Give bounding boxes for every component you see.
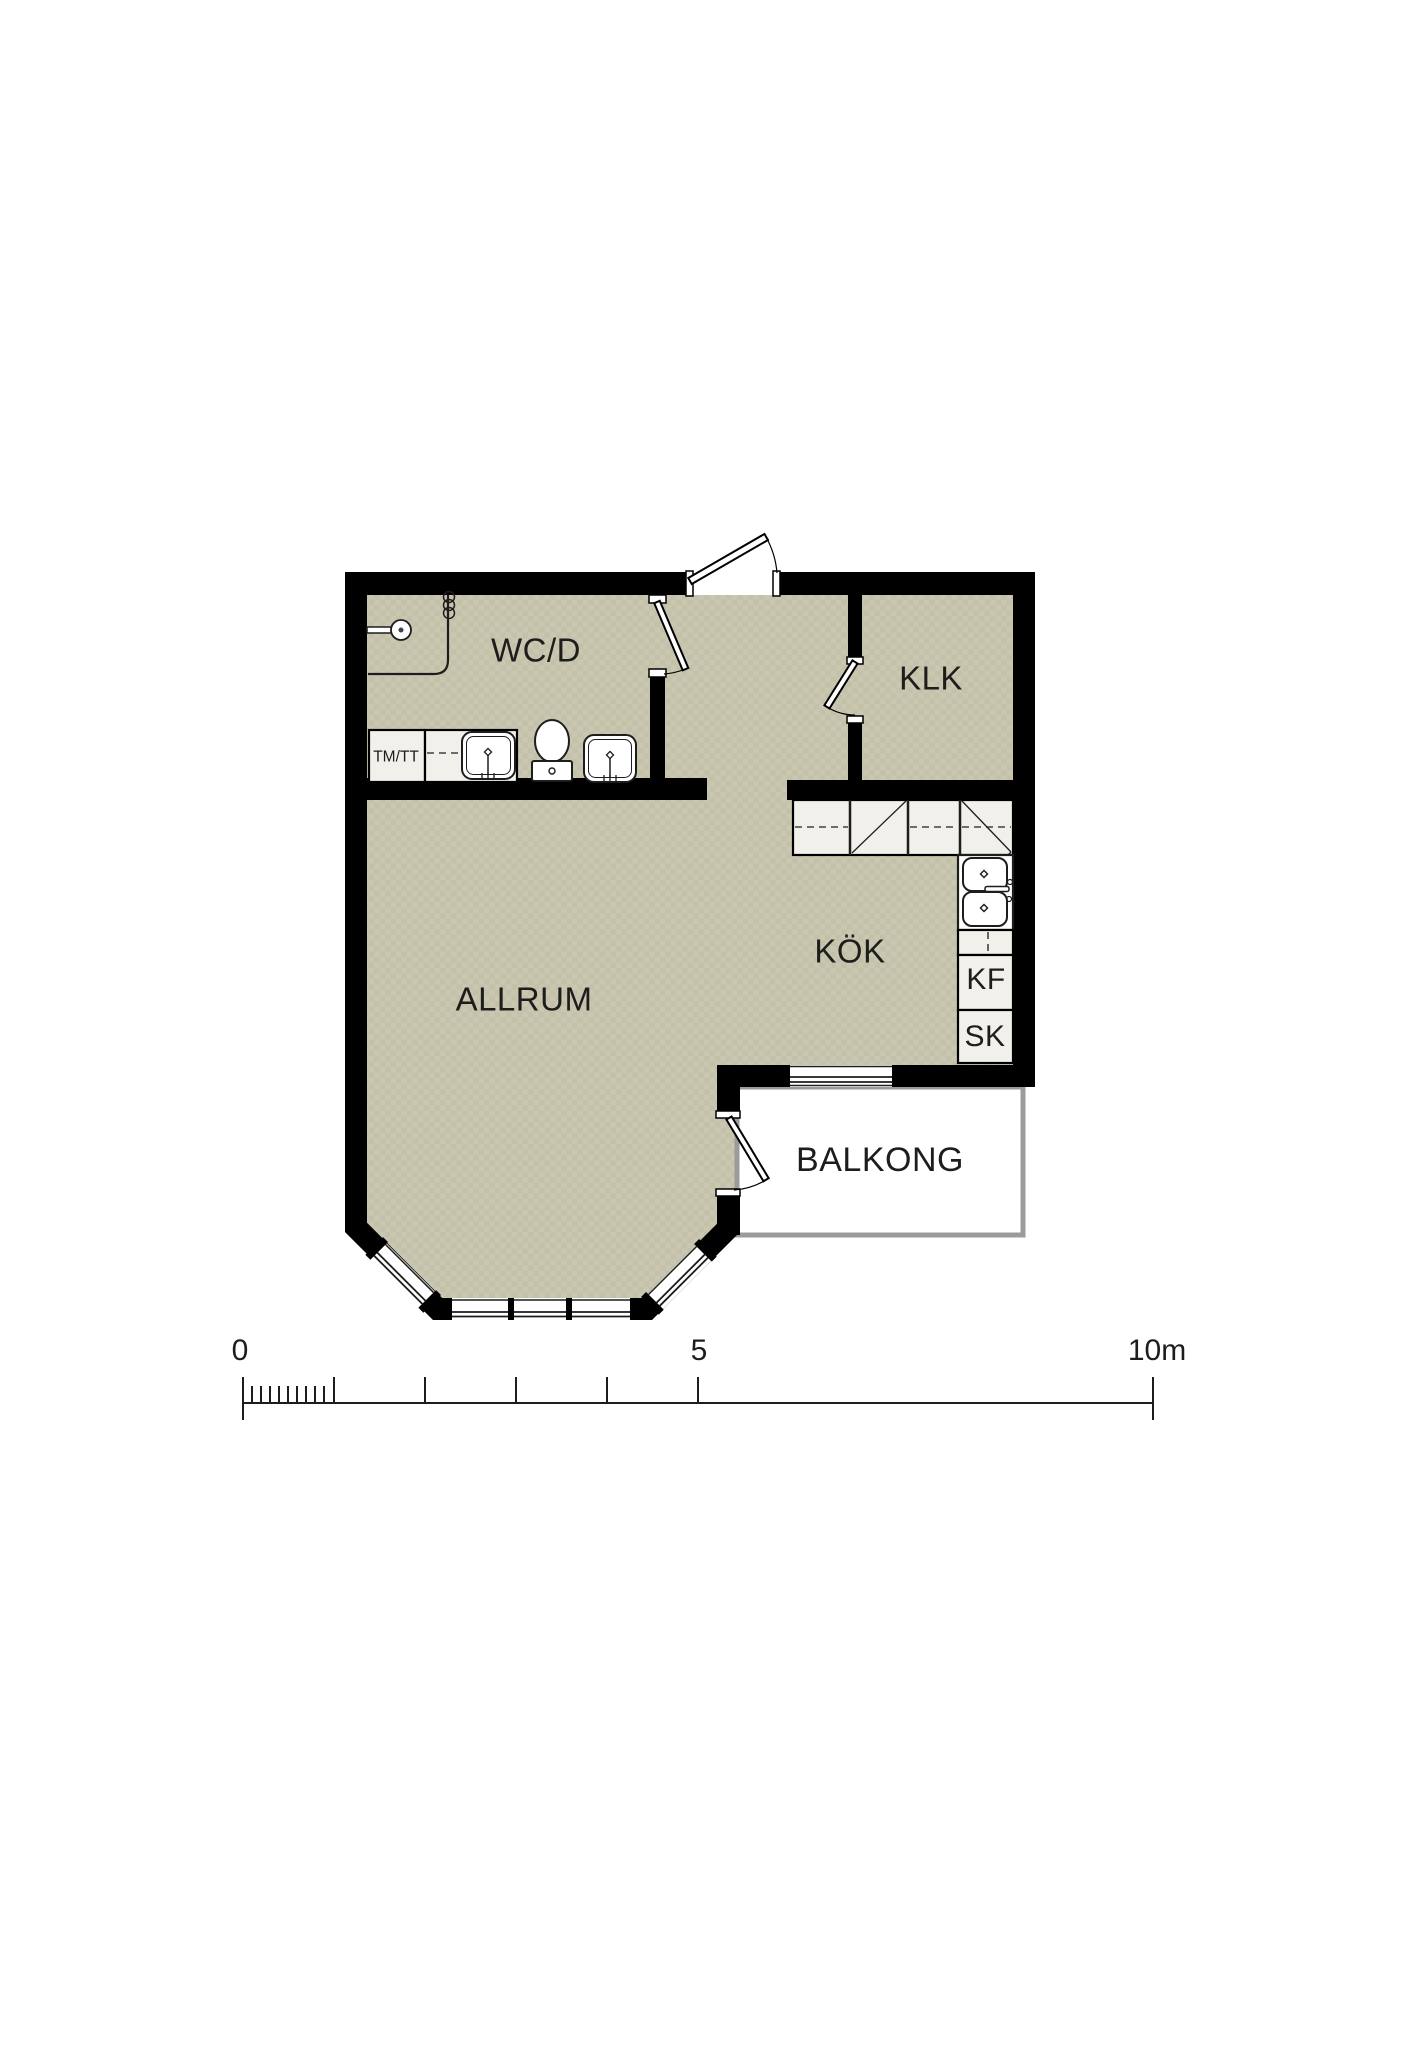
kitchen-balcony-window (790, 1065, 892, 1087)
room-label-wcd: WC/D (491, 634, 581, 667)
label-fridge-freezer: KF (966, 965, 1005, 995)
scale-label-0: 0 (232, 1336, 249, 1366)
room-label-klk: KLK (899, 662, 963, 695)
room-label-allrum: ALLRUM (456, 983, 593, 1016)
scale-label-10m: 10m (1128, 1336, 1186, 1366)
bathroom-sink-counter (425, 730, 517, 782)
scale-bar (243, 1377, 1153, 1420)
label-cleaning-closet: SK (964, 1022, 1005, 1052)
floor-plan-page: WC/D KLK KÖK ALLRUM BALKONG TM/TT KF SK … (0, 0, 1402, 2048)
room-label-kok: KÖK (814, 935, 885, 968)
label-washer-dryer: TM/TT (373, 749, 419, 765)
room-label-balkong: BALKONG (796, 1143, 964, 1177)
bay-window-bottom (452, 1298, 630, 1320)
toilet-icon (532, 720, 572, 781)
floor-plan-drawing (0, 0, 1402, 2048)
scale-label-5: 5 (691, 1336, 708, 1366)
kitchen-sink-icon (958, 855, 1013, 930)
washbasin-icon (584, 735, 636, 782)
